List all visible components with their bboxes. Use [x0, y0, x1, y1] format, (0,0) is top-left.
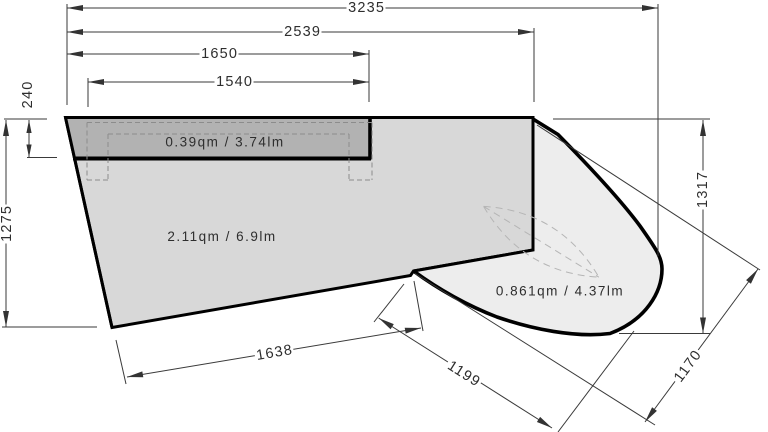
svg-text:0.861qm / 4.37lm: 0.861qm / 4.37lm: [496, 284, 624, 299]
svg-text:240: 240: [20, 81, 36, 109]
svg-text:1540: 1540: [216, 74, 253, 90]
svg-text:2.11qm / 6.9lm: 2.11qm / 6.9lm: [167, 229, 276, 244]
svg-text:1650: 1650: [201, 46, 238, 62]
svg-text:1275: 1275: [0, 205, 15, 242]
svg-text:1199: 1199: [444, 358, 483, 391]
svg-text:0.39qm / 3.74lm: 0.39qm / 3.74lm: [165, 135, 284, 150]
svg-text:1170: 1170: [671, 347, 705, 385]
svg-text:3235: 3235: [348, 0, 385, 16]
svg-text:2539: 2539: [284, 24, 321, 40]
svg-text:1317: 1317: [695, 171, 711, 208]
svg-text:1638: 1638: [255, 342, 294, 364]
